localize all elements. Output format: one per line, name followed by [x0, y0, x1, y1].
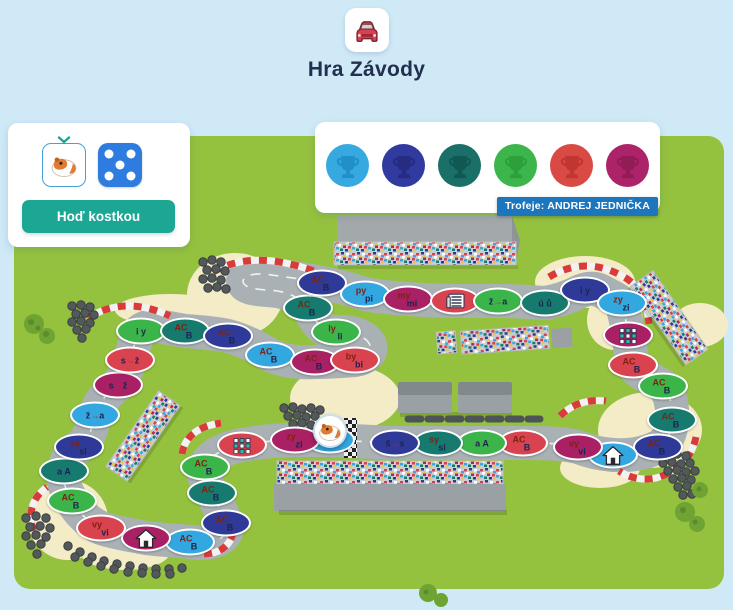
space-label: ž→a	[86, 411, 105, 419]
board-space: i y	[116, 318, 166, 345]
board-space: s→ž	[105, 347, 155, 374]
dice-pip	[105, 172, 114, 181]
page-title: Hra Závody	[0, 58, 733, 82]
space-label-bottom: bi	[355, 360, 363, 368]
trophy-icon	[333, 151, 363, 181]
space-label: š→s	[385, 439, 404, 447]
dice-pip	[116, 161, 125, 170]
trophy-icon	[557, 151, 587, 181]
space-label-bottom: B	[673, 420, 680, 428]
space-label-bottom: si	[438, 443, 446, 451]
news-icon	[446, 294, 465, 309]
space-label-bottom: B	[323, 283, 330, 291]
space-label-bottom: zi	[295, 440, 302, 448]
board-space: vyvi	[76, 515, 126, 542]
space-label-top: zy	[613, 295, 623, 303]
space-label-bottom: vi	[578, 447, 586, 455]
trophy-6	[606, 144, 649, 187]
board-space: zyzi	[597, 290, 647, 317]
dice-pip	[127, 172, 136, 181]
piece-selector[interactable]	[42, 143, 86, 187]
board-space: ACB	[187, 480, 237, 507]
space-label-bottom: B	[659, 447, 666, 455]
board-space: sysi	[54, 434, 104, 461]
dice-pip	[105, 150, 114, 159]
space-label-bottom: B	[524, 443, 531, 451]
space-label: i y	[136, 327, 146, 335]
house-icon	[602, 445, 624, 465]
board-space: ACB	[160, 318, 210, 345]
trophy-4	[494, 144, 537, 187]
space-label-bottom: B	[229, 336, 236, 344]
board-space: s→ž	[93, 372, 143, 399]
board-space: pypi	[340, 281, 390, 308]
board-space: ACB	[165, 529, 215, 556]
car-icon	[349, 12, 385, 48]
house-icon	[135, 528, 157, 548]
board-space: ACB	[647, 407, 697, 434]
board-space: ž→a	[70, 402, 120, 429]
board-space: ACB	[638, 373, 688, 400]
space-label-bottom: vi	[101, 528, 109, 536]
grid-icon	[233, 437, 251, 453]
space-label: ú ů	[538, 299, 552, 307]
space-label-top: zy	[286, 432, 296, 440]
trophy-1	[326, 144, 369, 187]
space-label-bottom: si	[79, 447, 87, 455]
space-label-top: ly	[328, 324, 336, 332]
player-token	[313, 414, 347, 448]
trophy-icon	[501, 151, 531, 181]
board-space	[121, 525, 171, 552]
board-space: ACB	[283, 295, 333, 322]
board-space: ž→a	[473, 288, 523, 315]
space-label: s→ž	[121, 356, 140, 364]
space-label-bottom: B	[316, 362, 323, 370]
trophy-icon	[389, 151, 419, 181]
space-label-bottom: B	[634, 365, 641, 373]
trophy-3	[438, 144, 481, 187]
space-label: a A	[57, 467, 71, 475]
chevron-down-icon	[57, 136, 71, 144]
space-label: a A	[475, 439, 489, 447]
trophy-2	[382, 144, 425, 187]
board-space: ACB	[180, 454, 230, 481]
board-space: ACB	[245, 342, 295, 369]
space-label-bottom: B	[664, 386, 671, 394]
trophy-5	[550, 144, 593, 187]
board-space: sysi	[413, 430, 463, 457]
hamster-icon	[49, 153, 79, 178]
player-panel: Hoď kostkou	[8, 123, 190, 247]
space-label-bottom: B	[73, 501, 80, 509]
space-label-bottom: mi	[407, 299, 418, 307]
board-space: a A	[39, 458, 89, 485]
game-logo	[345, 8, 389, 52]
space-label-bottom: zi	[622, 303, 629, 311]
space-label-bottom: B	[213, 493, 220, 501]
board-space: ACB	[633, 434, 683, 461]
space-label-bottom: B	[191, 542, 198, 550]
dice-pip	[127, 150, 136, 159]
space-label-bottom: B	[227, 523, 234, 531]
board-space: mymi	[383, 286, 433, 313]
space-label-bottom: B	[186, 331, 193, 339]
grid-icon	[619, 327, 637, 343]
board-space: š→s	[370, 430, 420, 457]
trophy-icon	[613, 151, 643, 181]
space-label: ž→a	[489, 297, 508, 305]
dice	[98, 143, 142, 187]
board-space	[217, 432, 267, 459]
board-space: vyvi	[553, 434, 603, 461]
space-label-bottom: B	[206, 467, 213, 475]
space-label: s→ž	[109, 381, 128, 389]
board-space: a A	[457, 430, 507, 457]
space-label-bottom: pi	[365, 294, 373, 302]
space-label-bottom: li	[337, 332, 342, 340]
board-spaces: →žzyziACBACBACBACBvyviACBa Asysiž→as→žs→…	[0, 0, 733, 610]
board-space: bybi	[330, 347, 380, 374]
trophy-icon	[445, 151, 475, 181]
board-space: lyli	[311, 319, 361, 346]
board-space: ACB	[47, 488, 97, 515]
roll-dice-button[interactable]: Hoď kostkou	[22, 200, 175, 233]
space-label-bottom: B	[309, 308, 316, 316]
space-label-bottom: B	[271, 355, 278, 363]
space-label: i y	[580, 286, 590, 294]
trophies-owner-badge: Trofeje: ANDREJ JEDNIČKA	[497, 197, 658, 216]
board-space	[603, 322, 653, 349]
hamster-icon	[317, 420, 343, 442]
board-space: ACB	[203, 323, 253, 350]
